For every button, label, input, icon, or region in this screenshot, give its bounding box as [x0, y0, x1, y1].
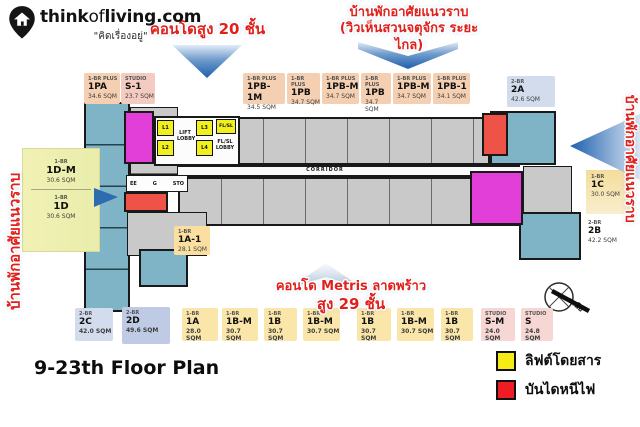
plan-unit-2B — [519, 212, 581, 260]
unit-label: 1-BR PLUS1PB-M34.7 SQM — [393, 73, 431, 104]
unit-code: 1A-1 — [178, 235, 210, 246]
flsl-lobby-label: FL/SL LOBBY — [212, 139, 238, 151]
plan-fire-stair-right — [482, 113, 508, 156]
unit-code: S — [525, 317, 553, 328]
unit-area: 34.5 SQM — [247, 104, 285, 111]
callout-lowrise-housing-top: บ้านพักอาศัยแนวราบ (วิวเห็นสวนจตุจักร ระ… — [334, 5, 484, 54]
unit-area: 30.6 SQM — [23, 213, 99, 220]
unit-label: STUDIOS24.8 SQM — [521, 308, 553, 341]
unit-code: 2C — [79, 317, 113, 328]
plan-south-units — [178, 177, 520, 226]
unit-code: 1A — [186, 317, 218, 328]
unit-area: 34.7 SQM — [397, 93, 431, 100]
unit-label: 1-BR1B-M30.7 SQM — [222, 308, 258, 341]
unit-type: 1-BR PLUS — [291, 76, 320, 88]
legend-item: บันไดหนีไฟ — [496, 379, 601, 401]
unit-label: 1-BR PLUS1PA34.6 SQM — [84, 73, 120, 104]
brand-name: thinkofliving.com — [40, 9, 201, 27]
unit-area: 34.7 SQM — [365, 99, 391, 113]
unit-label: 1-BR 1D 30.6 SQM — [23, 195, 99, 220]
plan-fire-stair-left — [124, 192, 168, 212]
unit-code: 2D — [126, 316, 170, 327]
lift-lobby-label: LIFT LOBBY — [177, 130, 193, 142]
legend-label: ลิฟต์โดยสาร — [525, 350, 601, 372]
unit-code: 1B — [268, 317, 297, 328]
passenger-lift-swatch — [496, 351, 516, 371]
flsl-lift: FL/SL — [216, 119, 236, 134]
unit-area: 30.7 SQM — [445, 328, 473, 342]
unit-area: 30.7 SQM — [268, 328, 297, 342]
unit-code: 1B-M — [226, 317, 258, 328]
unit-area: 24.8 SQM — [525, 328, 553, 342]
unit-code: 1PA — [88, 82, 120, 93]
unit-area: 28.0 SQM — [186, 328, 218, 342]
floor-plan-infographic: thinkofliving.com "คิดเรื่องอยู่" คอนโดส… — [0, 0, 640, 427]
unit-code: 1B-M — [307, 317, 340, 328]
unit-label: 2-BR2A42.6 SQM — [507, 76, 555, 107]
unit-label: 1-BR PLUS1PB34.7 SQM — [287, 73, 320, 104]
unit-area: 34.7 SQM — [291, 99, 320, 106]
unit-label: 1-BR PLUS1PB34.7 SQM — [361, 73, 391, 104]
unit-label: 1-BR PLUS1PB-1M34.5 SQM — [243, 73, 285, 104]
callout-lowrise-housing-left: บ้านพักอาศัยแนวราบ — [6, 146, 25, 336]
unit-area: 34.1 SQM — [437, 93, 470, 100]
unit-code: 1PB-M — [326, 82, 359, 93]
fire-stair-swatch — [496, 380, 516, 400]
unit-area: 30.7 SQM — [226, 328, 258, 342]
lift-L4: L4 — [196, 140, 213, 156]
unit-code: S-M — [485, 317, 515, 328]
unit-label: 2-BR2C42.0 SQM — [75, 308, 113, 341]
callout-metris-condo: คอนโด Metris ลาดพร้าว สูง 29 ชั้น — [272, 279, 430, 314]
plan-service-rooms: EE G STO — [126, 175, 188, 192]
unit-code: S-1 — [125, 82, 155, 93]
unit-area: 49.6 SQM — [126, 327, 170, 334]
callout-line: บ้านพักอาศัยแนวราบ — [334, 5, 484, 21]
callout-line: (วิวเห็นสวนจตุจักร ระยะไกล) — [334, 21, 484, 54]
unit-area: 34.7 SQM — [326, 93, 359, 100]
unit-area: 42.6 SQM — [511, 96, 555, 103]
plan-highlight-unit-1C — [470, 171, 523, 225]
legend-item: ลิฟต์โดยสาร — [496, 350, 601, 372]
unit-label: STUDIOS-123.7 SQM — [121, 73, 155, 104]
unit-label: 1-BR1B30.7 SQM — [441, 308, 473, 341]
service-room-STO: STO — [173, 181, 184, 187]
plan-right-gray-unit — [523, 166, 572, 214]
service-room-G: G — [153, 181, 157, 187]
unit-area: 24.0 SQM — [485, 328, 515, 342]
corridor-label: CORRIDOR — [300, 167, 350, 173]
legend: ลิฟต์โดยสาร บันไดหนีไฟ — [496, 350, 601, 408]
lift-L1: L1 — [157, 120, 174, 136]
brand-living: living — [104, 7, 156, 27]
unit-area: 34.6 SQM — [88, 93, 120, 100]
brand-dotcom: .com — [156, 7, 201, 27]
unit-area: 30.7 SQM — [361, 328, 391, 342]
unit-code: 1D-M — [23, 165, 99, 177]
page-title: 9-23th Floor Plan — [34, 357, 219, 379]
compass-north-label: เหนือ — [565, 295, 586, 315]
arrow-down-icon — [172, 45, 242, 78]
unit-label: 1-BR 1A-1 28.1 SQM — [174, 226, 210, 255]
brand-tagline: "คิดเรื่องอยู่" — [40, 29, 201, 44]
unit-label: 1-BR PLUS1PB-134.1 SQM — [433, 73, 470, 104]
callout-line: คอนโด Metris ลาดพร้าว — [272, 279, 430, 295]
unit-label: 1-BR PLUS1PB-M34.7 SQM — [322, 73, 359, 104]
unit-code: 1PB — [291, 88, 320, 99]
left-units-callout-box: 1-BR 1D-M 30.6 SQM 1-BR 1D 30.6 SQM — [22, 148, 100, 252]
unit-label: 1-BR 1D-M 30.6 SQM — [23, 159, 99, 184]
callout-line: สูง 29 ชั้น — [272, 295, 430, 314]
unit-area: 30.6 SQM — [23, 177, 99, 184]
unit-area: 30.7 SQM — [307, 328, 340, 335]
brand-of: of — [88, 7, 104, 27]
lift-L2: L2 — [157, 140, 174, 156]
unit-code: 1PB — [365, 88, 391, 99]
unit-code: 1B — [445, 317, 473, 328]
unit-code: 1PB-M — [397, 82, 431, 93]
unit-label: 2-BR2D49.6 SQM — [122, 307, 170, 344]
unit-area: 30.7 SQM — [401, 328, 434, 335]
legend-label: บันไดหนีไฟ — [525, 379, 595, 401]
callout-lowrise-housing-right: บ้านพักอาศัยแนวราบ — [620, 79, 638, 239]
unit-code: 2A — [511, 85, 555, 96]
thinkofliving-pin-icon — [8, 5, 36, 39]
unit-code: 1PB-1 — [437, 82, 470, 93]
brand-think: think — [40, 7, 88, 27]
unit-code: 1D — [23, 201, 99, 213]
unit-code: 1PB-1M — [247, 82, 285, 104]
unit-code: 1B-M — [401, 317, 434, 328]
unit-area: 28.1 SQM — [178, 246, 210, 253]
plan-highlight-unit-left — [124, 111, 154, 164]
unit-label: 1-BR1A28.0 SQM — [182, 308, 218, 341]
unit-code: 1B — [361, 317, 391, 328]
unit-type: 1-BR PLUS — [365, 76, 391, 88]
unit-area: 23.7 SQM — [125, 93, 155, 100]
divider — [31, 189, 91, 190]
brand-logo: thinkofliving.com "คิดเรื่องอยู่" — [8, 5, 201, 44]
lift-L3: L3 — [196, 120, 213, 136]
service-room-EE: EE — [130, 181, 137, 187]
unit-label: STUDIOS-M24.0 SQM — [481, 308, 515, 341]
unit-area: 42.0 SQM — [79, 328, 113, 335]
